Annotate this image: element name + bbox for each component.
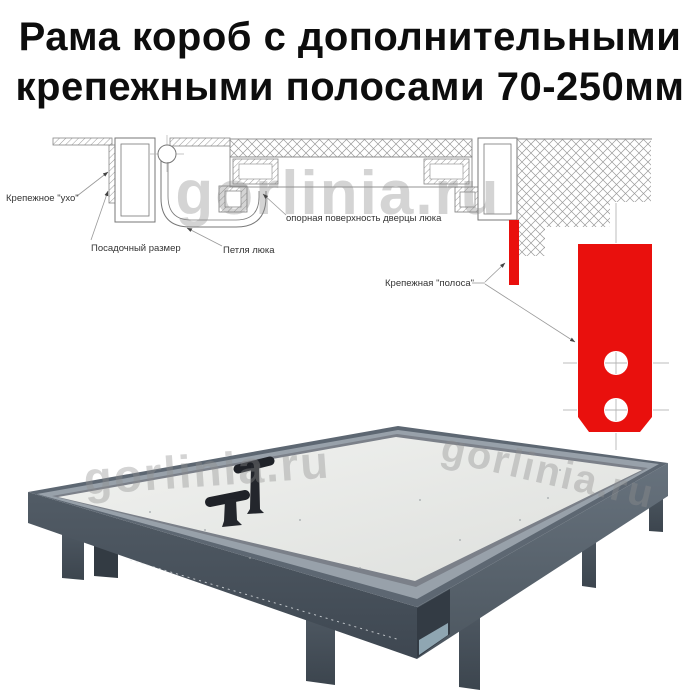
illustration: gorlinia.ru — [0, 0, 700, 700]
product-page: Рама короб с дополнительными крепежными … — [0, 0, 700, 700]
wall-crosshatch — [517, 139, 652, 256]
frame-profile-left — [115, 138, 155, 222]
ceiling-strip-mid — [170, 138, 230, 146]
ceiling-strip-left — [53, 138, 112, 145]
label-fastening-strip: Крепежная "полоса" — [385, 278, 474, 289]
label-mounting-ear: Крепежное "ухо" — [6, 193, 79, 204]
label-seat-size: Посадочный размер — [91, 243, 181, 254]
label-hinge: Петля люка — [223, 245, 275, 256]
label-support-face: опорная поверхность дверцы люка — [286, 213, 442, 224]
product-photo: gorlinia.ru gorlinia.ru — [28, 425, 668, 690]
fastening-strip-small — [509, 220, 519, 285]
